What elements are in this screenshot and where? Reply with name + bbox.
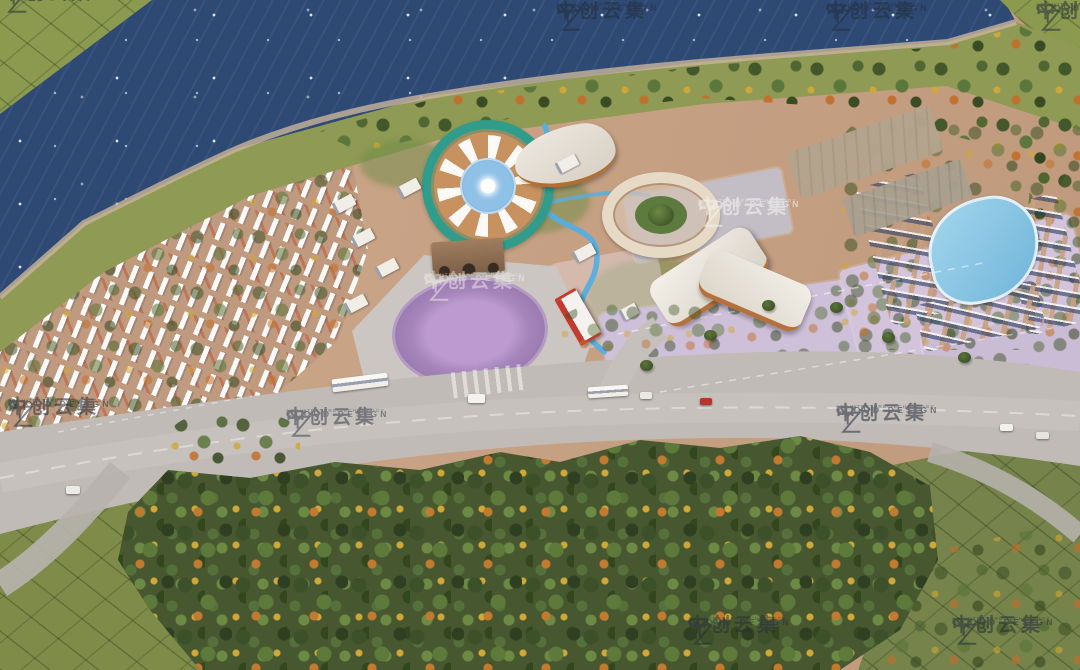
tree bbox=[830, 302, 843, 313]
tree-grove bbox=[170, 412, 300, 470]
courtyard-tree bbox=[648, 204, 674, 226]
fountain-pool bbox=[460, 158, 516, 214]
van bbox=[468, 394, 485, 403]
entrance-gate bbox=[431, 238, 505, 277]
aerial-masterplan-render: 中创云集CLOUD DESIGNARCHITECTURE TECHNOLOGY … bbox=[0, 0, 1080, 670]
car bbox=[66, 486, 80, 494]
fountain-jet bbox=[481, 179, 495, 193]
car bbox=[1036, 432, 1049, 439]
car bbox=[640, 392, 652, 399]
tree bbox=[762, 300, 775, 311]
red-car bbox=[700, 398, 712, 405]
tree bbox=[882, 332, 895, 343]
tree-grove bbox=[560, 300, 730, 360]
tree bbox=[958, 352, 971, 363]
tree bbox=[640, 360, 653, 371]
car bbox=[1000, 424, 1013, 431]
ring-courtyard-building bbox=[602, 172, 720, 258]
side-road-southeast bbox=[930, 452, 1080, 535]
